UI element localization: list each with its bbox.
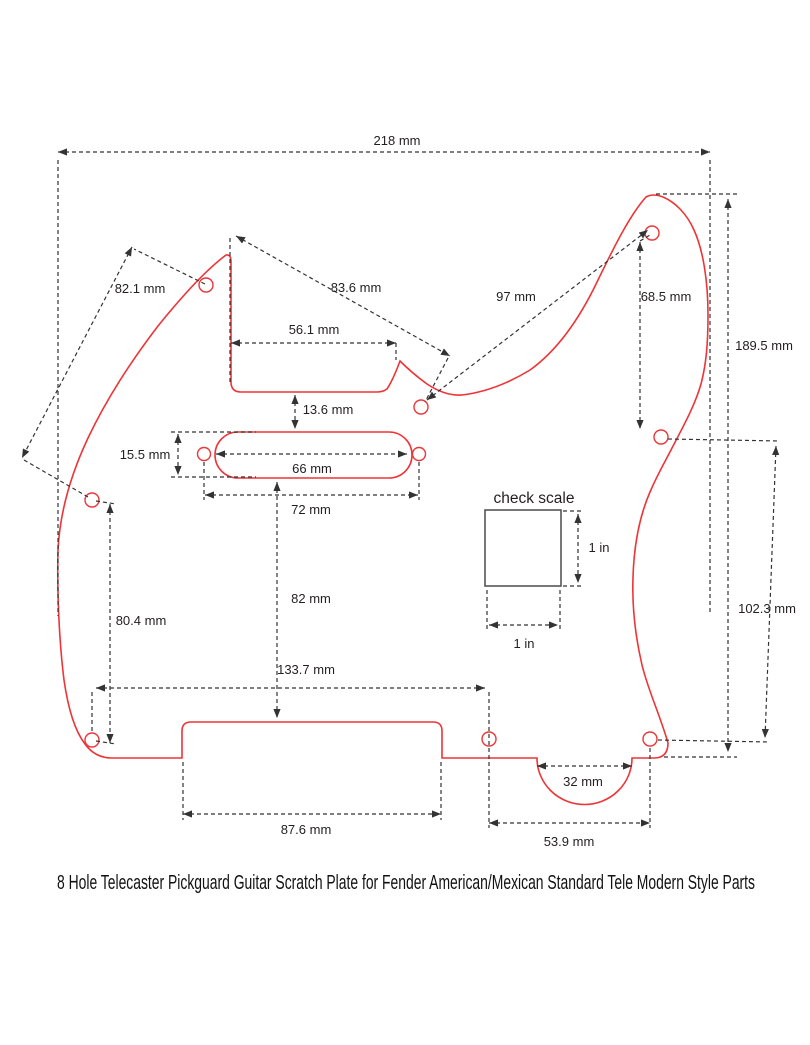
dim-label: 80.4 mm [116, 613, 167, 628]
dim-label: 56.1 mm [289, 322, 340, 337]
dimension-mid-to-upper-right-hole-span: 97 mm [427, 230, 648, 400]
dimension-upper-right-hole-drop: 68.5 mm [640, 235, 691, 429]
dim-label: 82 mm [291, 591, 331, 606]
dim-label: 83.6 mm [331, 280, 382, 295]
dimension-bridge-cutout-width: 87.6 mm [183, 762, 441, 837]
dimension-pocket-to-pickup-gap: 13.6 mm [295, 395, 353, 429]
screw-hole [414, 400, 428, 414]
dim-label: 1 in [514, 636, 535, 651]
screw-hole [645, 226, 659, 240]
dim-label: 102.3 mm [738, 601, 796, 616]
dim-label: 15.5 mm [120, 447, 171, 462]
dim-label: 13.6 mm [303, 402, 354, 417]
dimension-pickup-cutout-height: 15.5 mm [120, 432, 256, 477]
dim-label: 32 mm [563, 774, 603, 789]
pickguard-drawing: 218 mm 82.1 mm 83.6 mm 97 mm 68.5 mm 189… [0, 0, 810, 1045]
dimension-upper-left-hole-span: 82.1 mm [22, 247, 205, 497]
dim-label: 66 mm [292, 461, 332, 476]
dim-label: 218 mm [374, 133, 421, 148]
dim-label: 68.5 mm [641, 289, 692, 304]
dim-label: 72 mm [291, 502, 331, 517]
dimension-right-hole-span: 102.3 mm [658, 439, 796, 742]
dim-label: 189.5 mm [735, 338, 793, 353]
check-scale-width-dim: 1 in [487, 590, 560, 651]
dim-label: 1 in [589, 540, 610, 555]
screw-hole [85, 733, 99, 747]
dimension-neck-pocket-width: 56.1 mm [231, 322, 396, 360]
dim-label: 133.7 mm [277, 662, 335, 677]
dimension-bottom-right-hole-span: 53.9 mm [489, 748, 650, 849]
dim-label: 97 mm [496, 289, 536, 304]
dim-label: 53.9 mm [544, 834, 595, 849]
screw-hole [199, 278, 213, 292]
screw-hole [85, 493, 99, 507]
screw-hole [643, 732, 657, 746]
dimension-arch-width: 32 mm [537, 766, 632, 789]
check-scale-square [485, 510, 561, 586]
technical-drawing-page: 218 mm 82.1 mm 83.6 mm 97 mm 68.5 mm 189… [0, 0, 810, 1045]
check-scale-heading: check scale [494, 490, 575, 507]
pickup-screw-hole [198, 448, 211, 461]
dimension-pickup-to-bridge-gap: 82 mm [277, 482, 331, 718]
check-scale-height-dim: 1 in [563, 511, 609, 586]
pickup-screw-hole [413, 448, 426, 461]
dim-label: 87.6 mm [281, 822, 332, 837]
dimension-overall-height: 189.5 mm [656, 194, 793, 757]
screw-holes [85, 226, 668, 747]
dimension-pickup-cutout-width: 66 mm [216, 454, 407, 476]
dimension-bottom-hole-offset: 133.7 mm [92, 662, 489, 828]
drawing-title: 8 Hole Telecaster Pickguard Guitar Scrat… [57, 871, 755, 894]
dimension-overall-width: 218 mm [58, 133, 710, 616]
dim-label: 82.1 mm [115, 281, 166, 296]
screw-hole [654, 430, 668, 444]
check-scale-block: check scale 1 in 1 in [485, 490, 609, 651]
dimension-left-hole-span: 80.4 mm [96, 501, 166, 744]
